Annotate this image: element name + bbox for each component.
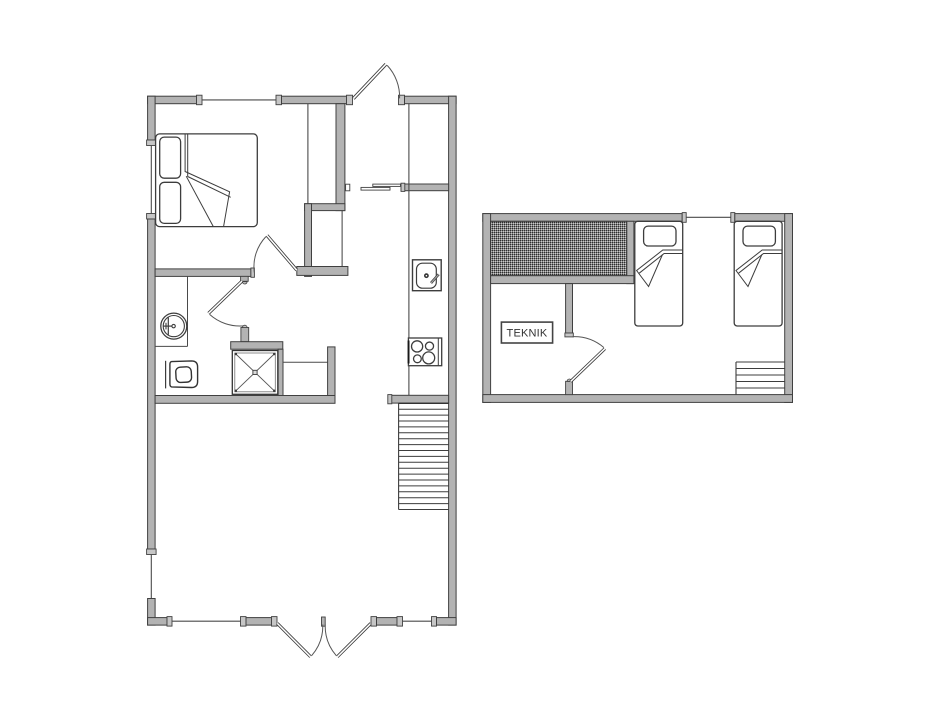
svg-text:TEKNIK: TEKNIK [507,327,548,339]
